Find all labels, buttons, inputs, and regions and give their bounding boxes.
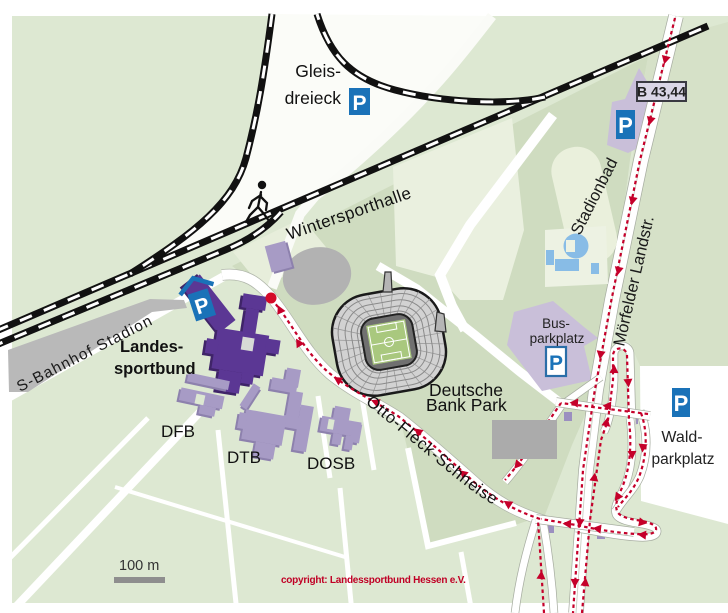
svg-text:Wald-: Wald- [661,429,702,446]
svg-text:parkplatz: parkplatz [530,331,585,346]
svg-text:P: P [674,391,689,416]
svg-text:DTB: DTB [227,448,261,467]
svg-text:sportbund: sportbund [114,360,196,378]
svg-text:Gleis-: Gleis- [295,61,341,81]
svg-text:DFB: DFB [161,422,195,441]
svg-text:P: P [352,92,366,115]
svg-text:Bus-: Bus- [542,316,570,331]
svg-text:100 m: 100 m [119,558,159,574]
svg-text:P: P [618,113,633,138]
svg-text:parkplatz: parkplatz [652,451,715,468]
svg-text:dreieck: dreieck [285,88,342,108]
svg-text:copyright: Landessportbund Hes: copyright: Landessportbund Hessen e.V. [281,575,466,586]
svg-text:Bank Park: Bank Park [426,395,507,415]
svg-text:B 43,44: B 43,44 [637,84,686,100]
svg-text:DOSB: DOSB [307,454,355,473]
svg-text:P: P [549,352,563,375]
svg-text:Landes-: Landes- [120,338,183,356]
